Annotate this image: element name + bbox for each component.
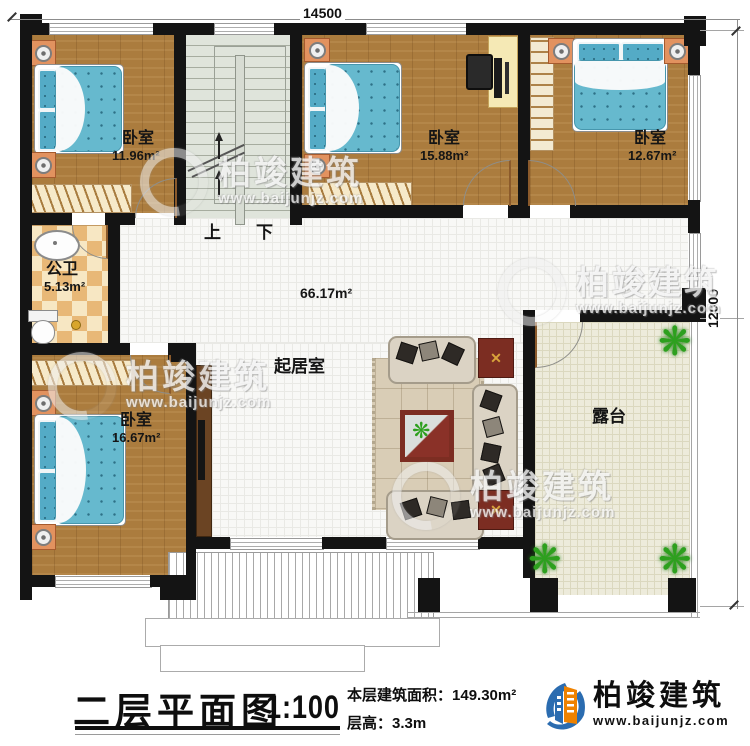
terrace-rail-bottom-2 [408, 617, 700, 618]
bed-sheet [575, 61, 665, 90]
desk-lamp [505, 62, 509, 94]
bedroom-n-area: 15.88m² [420, 149, 468, 162]
bedroom-sw-area: 16.67m² [112, 431, 160, 444]
floor-height-line: 层高：3.3m [347, 712, 426, 733]
wall-bath-right [108, 213, 120, 355]
bathroom-area: 5.13m² [44, 280, 85, 293]
tv-icon [198, 420, 205, 480]
dimension-top-label: 14500 [300, 6, 345, 20]
nightstand [304, 154, 330, 178]
wall-bedrooms-n-south [302, 205, 463, 218]
bedroom-nw-label: 卧室 [122, 131, 154, 147]
bed-pillow [577, 42, 621, 62]
wall-bedrooms-n-south-3 [570, 205, 700, 218]
wall-top [466, 23, 700, 35]
brand-name: 柏竣建筑 [593, 681, 729, 713]
porch-outline-lower [160, 645, 365, 672]
column [668, 578, 696, 612]
wall-right [688, 23, 700, 75]
stair-down-arrow [215, 170, 223, 179]
porch-outline-upper [145, 618, 440, 647]
towel-ring-icon [71, 320, 81, 330]
bedroom-ne-label: 卧室 [634, 131, 666, 147]
bedroom-n-label: 卧室 [428, 131, 460, 147]
dimension-line-right [737, 19, 738, 609]
nightstand [30, 524, 56, 550]
side-table: ✕ [478, 338, 514, 378]
bedroom-nw-area: 11.96m² [112, 149, 160, 162]
brand-logo-block: 柏竣建筑 www.baijunjz.com [541, 678, 729, 732]
wall-bedroom-sw-top [20, 343, 130, 355]
stair-arrow-stem [218, 141, 220, 159]
wall-bedroom-sw-right [186, 343, 196, 600]
stair-inner-outline [214, 46, 286, 204]
window-living-south-1 [230, 538, 324, 550]
floor-height-value: 3.3m [392, 715, 426, 732]
stair-up-label: 上 [204, 224, 221, 241]
bed-mattress [325, 64, 400, 152]
balcony-hatch [168, 552, 434, 624]
lamp-icon [309, 158, 326, 175]
sink-drain [53, 241, 57, 245]
nightstand [30, 40, 56, 66]
column [418, 578, 440, 612]
plant-icon: ❋ [528, 540, 562, 580]
floor-area-line: 本层建筑面积：149.30m² [347, 684, 516, 705]
bed-pillow [621, 42, 665, 62]
desk-chair [466, 54, 493, 90]
floor-plan-page: 上 下 ❋ [0, 0, 750, 746]
plant-icon: ❋ [658, 322, 692, 362]
terrace-label: 露台 [592, 408, 626, 425]
nightstand [30, 152, 56, 178]
wall-top [274, 23, 366, 35]
wall-stair-right [290, 23, 302, 225]
plant-icon: ❋ [658, 540, 692, 580]
window-right-1 [689, 75, 701, 202]
stair-up-arrow [215, 132, 223, 141]
nightstand [548, 38, 574, 64]
toilet-icon [31, 320, 55, 344]
lamp-icon [35, 157, 52, 174]
terrace-rail-bottom-1 [408, 612, 700, 613]
column [530, 578, 558, 612]
plan-scale: 1:100 [266, 689, 340, 726]
wall-bedroom-sw-south [20, 575, 55, 587]
lamp-icon [309, 42, 326, 59]
sofa-cushion [451, 500, 471, 520]
stair-down-label: 下 [256, 224, 273, 241]
floor-area-label: 本层建筑面积： [347, 687, 452, 704]
living-label: 起居室 [274, 358, 325, 375]
stair-rail [235, 55, 245, 225]
lamp-icon [35, 529, 52, 546]
window-top-3 [366, 23, 468, 35]
wall-bath-top [20, 213, 72, 225]
sofa-cushion [480, 442, 501, 463]
floor-area-value: 149.30m² [452, 687, 516, 704]
title-underline [75, 726, 340, 730]
floor-height-label: 层高： [347, 715, 392, 732]
dimension-right-label: 12000 [706, 286, 720, 331]
dimension-line-top [10, 19, 740, 20]
brand-logo-icon [541, 678, 587, 732]
bathroom-label: 公卫 [46, 262, 78, 278]
terrace-rail-right-2 [697, 322, 698, 618]
wall-living-south-2 [322, 537, 386, 549]
wall-living-south-3 [478, 537, 523, 549]
dimension-tick [7, 12, 17, 22]
lamp-icon [553, 43, 570, 60]
bedroom-ne-area: 12.67m² [628, 149, 676, 162]
lamp-icon [35, 45, 52, 62]
side-table: ✕ [478, 490, 514, 530]
bedroom-sw-label: 卧室 [120, 413, 152, 429]
window-right-2 [689, 233, 701, 292]
window-top-2 [214, 23, 276, 35]
window-bedroom-sw [55, 576, 152, 588]
dimension-tick [731, 26, 741, 36]
wall-corner-sw [160, 575, 196, 600]
window-top-1 [49, 23, 155, 35]
bed-sheet [56, 67, 85, 151]
bed-mattress [574, 60, 666, 130]
bed-sheet [326, 65, 359, 151]
wardrobe [308, 182, 412, 206]
desk-items [494, 58, 502, 98]
bed-mattress [55, 66, 122, 152]
wall-living-south [196, 537, 230, 549]
wardrobe [26, 184, 132, 213]
nightstand [304, 38, 330, 62]
title-underline-thin [75, 734, 340, 735]
stair-arrow-stem-2 [218, 179, 220, 197]
nightstand [30, 390, 56, 416]
living-area: 66.17m² [300, 286, 352, 300]
wardrobe [26, 360, 132, 386]
brand-url: www.baijunjz.com [593, 713, 729, 729]
sofa-cushion [418, 340, 439, 361]
plant-icon: ❋ [412, 420, 430, 442]
bed-sheet [56, 417, 86, 523]
lamp-icon [35, 395, 52, 412]
